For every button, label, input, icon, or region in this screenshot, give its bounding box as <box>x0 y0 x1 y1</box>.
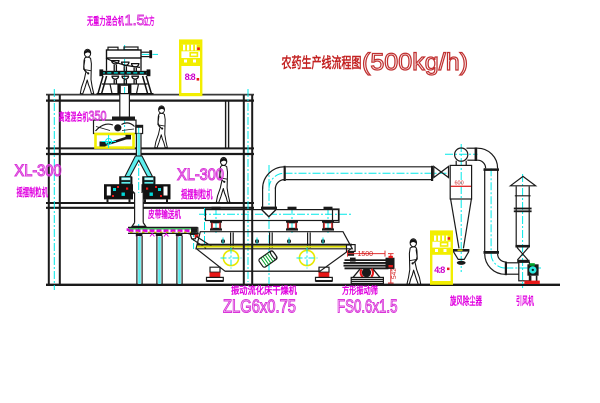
svg-text:无重力混合机: 无重力混合机 <box>86 14 124 27</box>
svg-text:542: 542 <box>391 268 398 279</box>
svg-text:摇摆制粒机: 摇摆制粒机 <box>181 187 213 201</box>
svg-text:1500: 1500 <box>358 251 374 258</box>
svg-text:ZLG6x0.75: ZLG6x0.75 <box>223 296 296 317</box>
svg-text:350: 350 <box>89 108 107 123</box>
svg-text:高速混合机: 高速混合机 <box>59 109 89 123</box>
svg-text:1.5: 1.5 <box>125 13 145 29</box>
svg-text:FS0.6x1.5: FS0.6x1.5 <box>337 296 398 317</box>
svg-text:旋风除尘器: 旋风除尘器 <box>449 294 482 308</box>
svg-text:农药生产线流程图: 农药生产线流程图 <box>281 54 362 72</box>
svg-text:XL-300: XL-300 <box>15 161 62 180</box>
svg-text:(500kg/h): (500kg/h) <box>362 49 468 76</box>
svg-text:立方: 立方 <box>144 14 155 27</box>
svg-text:4:8: 4:8 <box>434 265 445 275</box>
svg-text:摇摆制粒机: 摇摆制粒机 <box>17 185 49 199</box>
svg-text:XL-300: XL-300 <box>177 165 224 184</box>
svg-text:引风机: 引风机 <box>516 294 534 308</box>
svg-text:600: 600 <box>455 181 464 187</box>
svg-text:皮带输送机: 皮带输送机 <box>147 208 181 221</box>
svg-text:8:8: 8:8 <box>185 72 196 82</box>
